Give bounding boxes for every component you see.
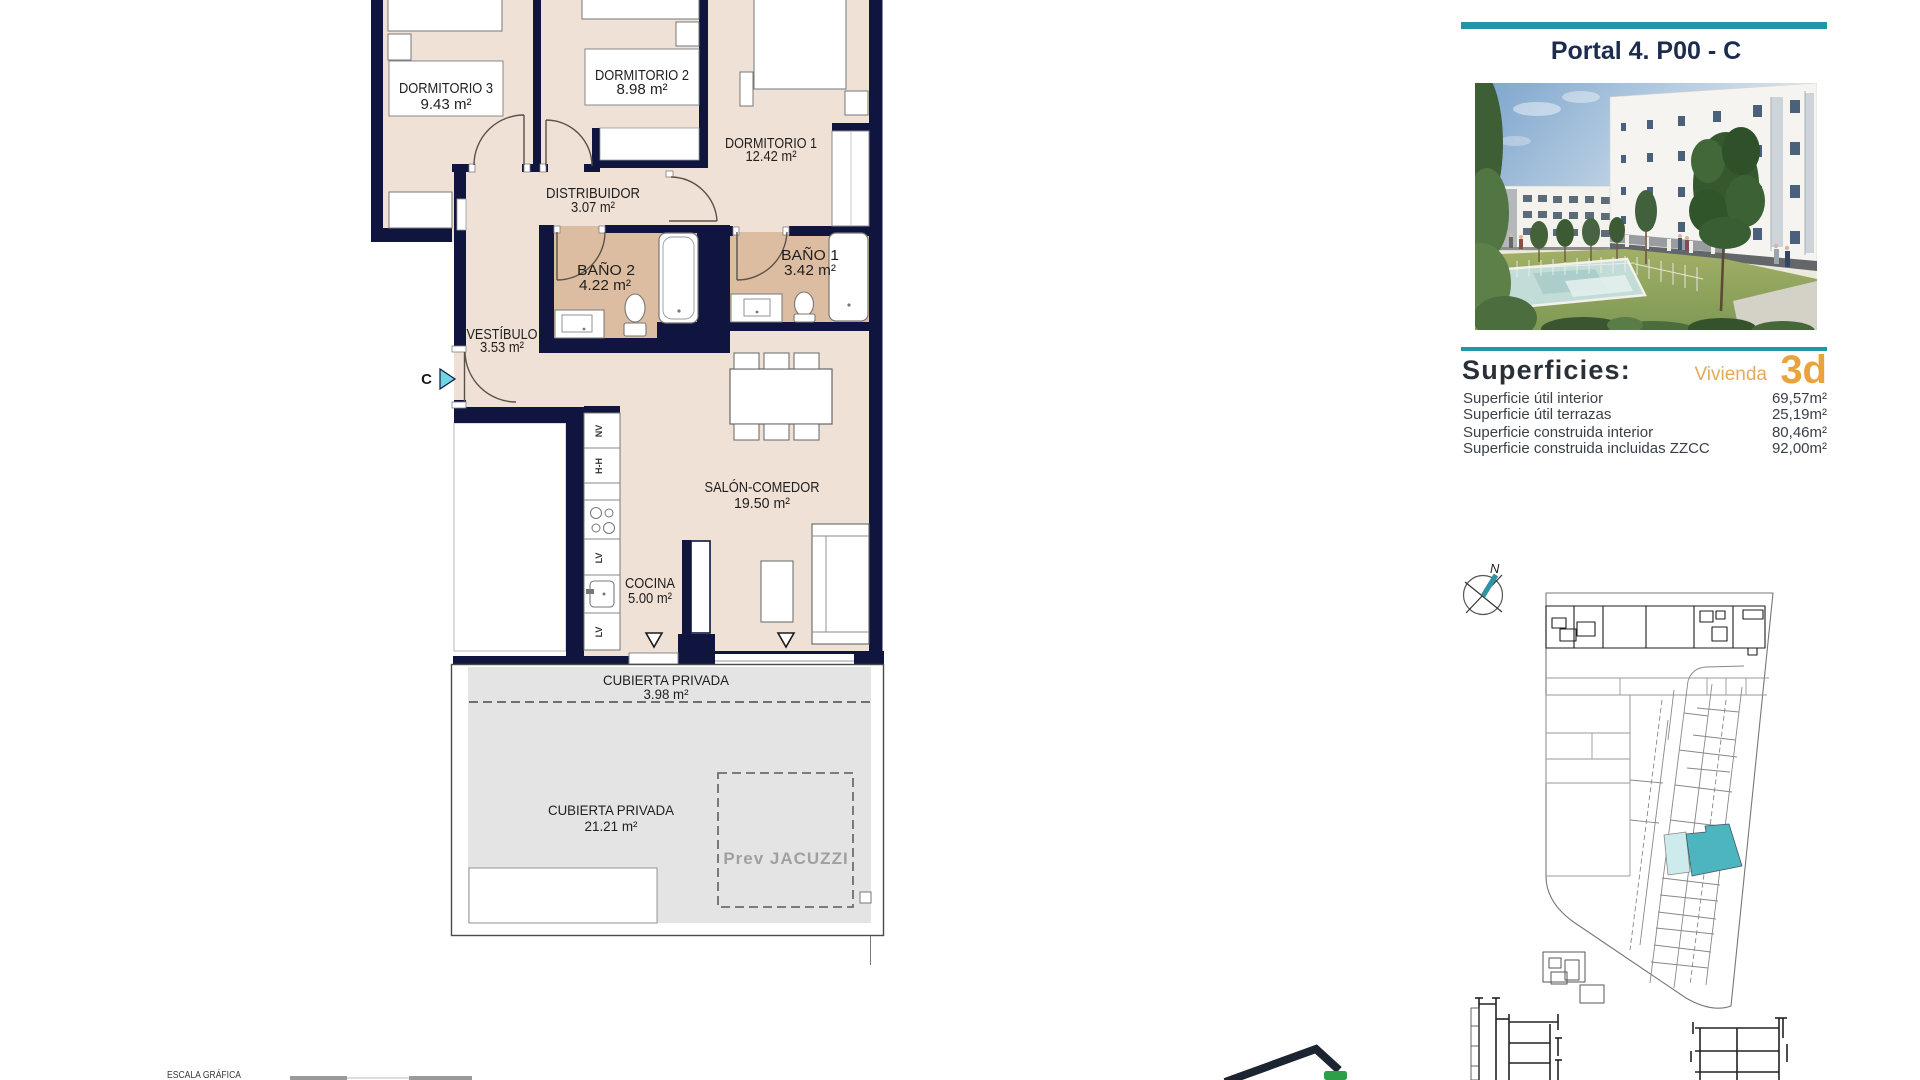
svg-text:80,46m²: 80,46m² — [1772, 424, 1827, 441]
svg-text:LV: LV — [594, 553, 604, 564]
svg-text:19.50 m²: 19.50 m² — [734, 495, 790, 512]
svg-text:SALÓN-COMEDOR: SALÓN-COMEDOR — [705, 479, 820, 496]
svg-text:8.98 m²: 8.98 m² — [617, 81, 668, 98]
svg-text:25,19m²: 25,19m² — [1772, 406, 1827, 423]
svg-text:NV: NV — [594, 425, 604, 438]
svg-text:21.21 m²: 21.21 m² — [585, 818, 638, 834]
svg-text:3.53 m²: 3.53 m² — [480, 339, 524, 356]
svg-text:C: C — [421, 371, 432, 388]
svg-text:Vivienda: Vivienda — [1694, 364, 1767, 385]
svg-text:H-H: H-H — [594, 458, 604, 474]
svg-text:92,00m²: 92,00m² — [1772, 440, 1827, 457]
svg-text:Superficie construida interior: Superficie construida interior — [1463, 424, 1653, 441]
svg-text:5.00 m²: 5.00 m² — [628, 590, 672, 607]
svg-text:Superficie construida incluida: Superficie construida incluidas ZZCC — [1463, 440, 1710, 457]
svg-text:3.98 m²: 3.98 m² — [644, 686, 689, 702]
svg-text:DORMITORIO 3: DORMITORIO 3 — [399, 80, 493, 97]
svg-text:69,57m²: 69,57m² — [1772, 390, 1827, 407]
svg-text:N: N — [1490, 561, 1500, 576]
svg-text:ESCALA GRÁFICA: ESCALA GRÁFICA — [167, 1068, 241, 1080]
svg-text:Superficies:: Superficies: — [1462, 355, 1631, 385]
svg-text:3.07 m²: 3.07 m² — [571, 199, 615, 216]
svg-text:CUBIERTA PRIVADA: CUBIERTA PRIVADA — [548, 802, 675, 818]
svg-text:Superficie útil interior: Superficie útil interior — [1463, 390, 1603, 407]
svg-text:3d: 3d — [1780, 348, 1827, 392]
svg-text:3.42 m²: 3.42 m² — [784, 262, 836, 279]
svg-text:Superficie útil terrazas: Superficie útil terrazas — [1463, 406, 1611, 423]
svg-text:9.43 m²: 9.43 m² — [421, 96, 472, 113]
svg-text:LV: LV — [594, 627, 604, 638]
svg-text:12.42 m²: 12.42 m² — [746, 148, 797, 165]
svg-text:4.22 m²: 4.22 m² — [579, 277, 631, 294]
svg-text:Portal 4. P00 - C: Portal 4. P00 - C — [1551, 37, 1741, 65]
svg-text:Prev JACUZZI: Prev JACUZZI — [723, 849, 848, 868]
